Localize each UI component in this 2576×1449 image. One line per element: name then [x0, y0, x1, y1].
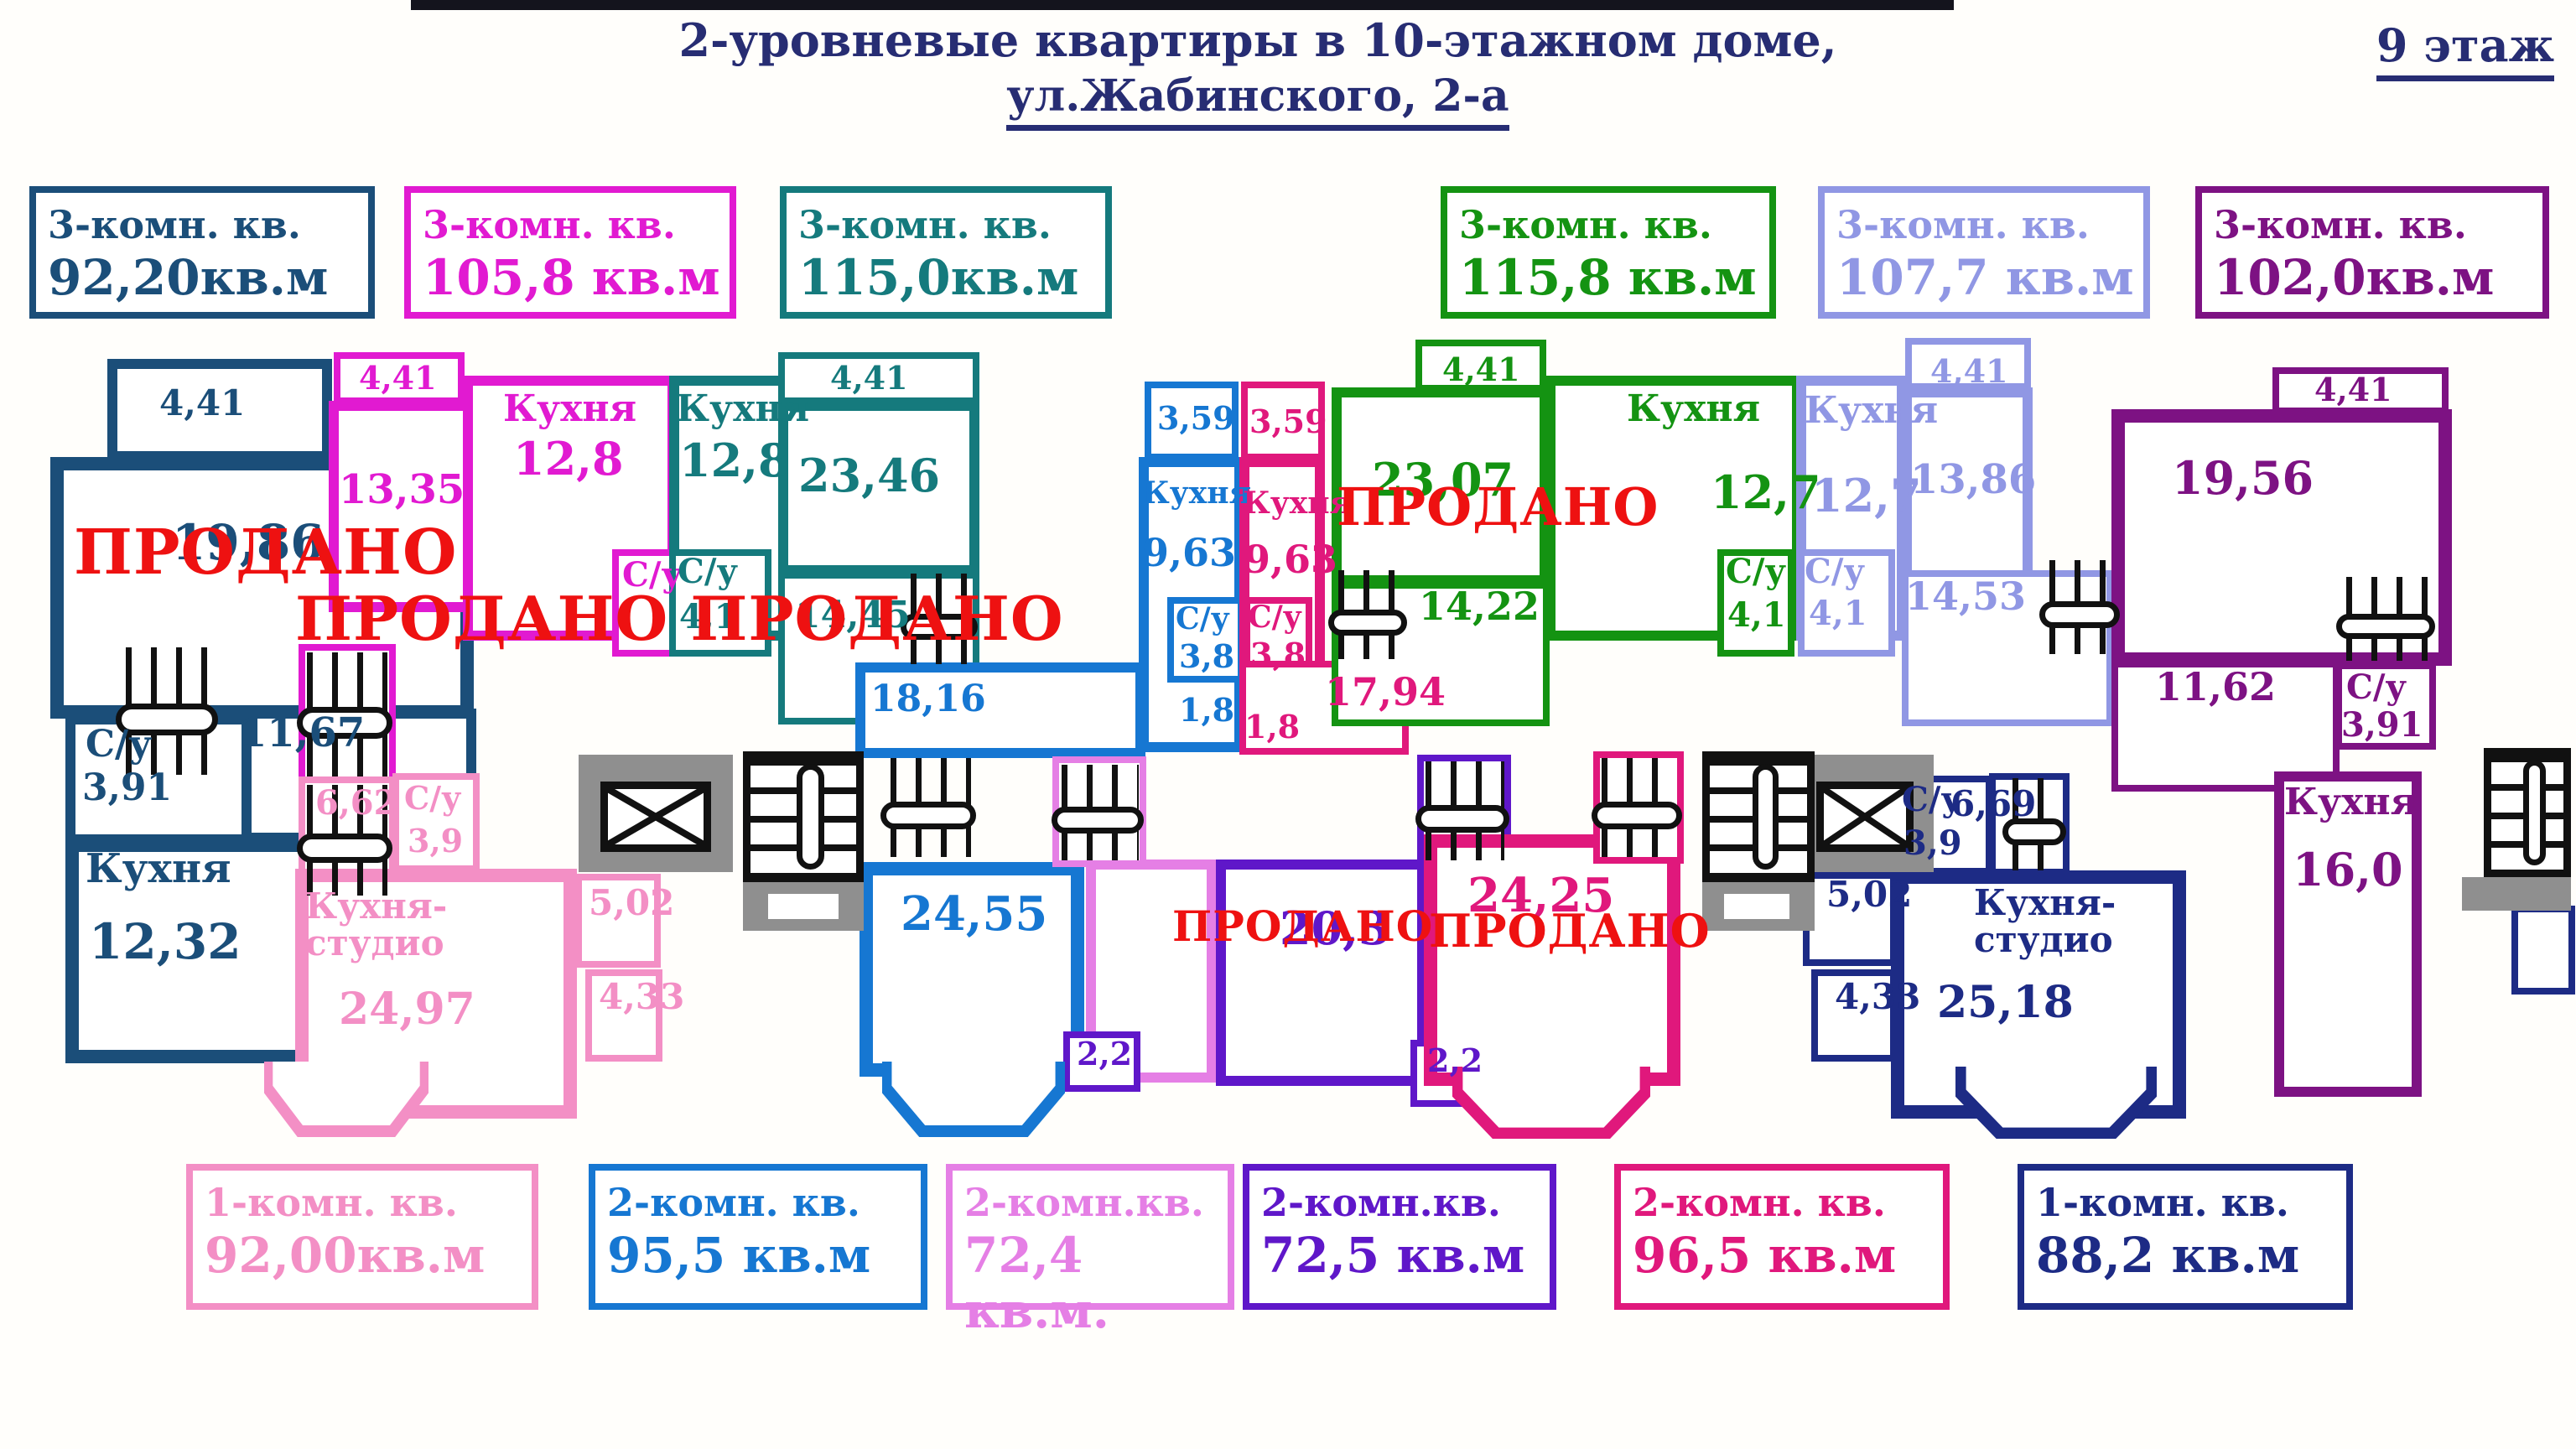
room-label: С/у: [1726, 555, 1786, 589]
sold-stamp: ПРОДАНО ПРОДАНО: [295, 589, 1064, 649]
room-label: Кухня: [1243, 488, 1352, 518]
room-label: Кухня: [2284, 784, 2418, 821]
room-label: 3,59: [1249, 406, 1327, 438]
stairwell-icon-left: [743, 751, 864, 882]
stairs-icon-green: [1338, 570, 1402, 659]
room-label: С/у: [404, 782, 461, 814]
room-label: 23,46: [798, 453, 940, 498]
room-label: Кухня-: [1974, 885, 2116, 921]
bay-window-pink: [264, 1062, 428, 1137]
room-label: С/у: [86, 726, 152, 763]
room-label: С/у: [1248, 602, 1302, 632]
room-label: 14,53: [1905, 577, 2026, 615]
room-label: 3,59: [1157, 402, 1235, 434]
room-label: 2,2: [1427, 1045, 1483, 1077]
room-label: 4,1: [1809, 597, 1867, 631]
room-label: Кухня: [1805, 392, 1938, 429]
room-label: 4,41: [1442, 354, 1520, 386]
stairwell-icon-right: [1702, 751, 1815, 882]
landing-window-right: [1724, 894, 1789, 919]
room-label: Кухня: [503, 391, 636, 428]
room-label: 3,8: [1250, 639, 1306, 671]
room-label: студио: [1974, 922, 2113, 958]
room-label: 16,0: [2293, 847, 2403, 892]
floorplan-page: { "header": { "title_line1": "2-уровневы…: [0, 0, 2576, 1449]
room-label: 4,41: [359, 362, 437, 394]
room-label: 12,7: [1711, 470, 1821, 515]
room-label: 12,32: [89, 917, 241, 966]
room-label: 1,8: [1244, 711, 1300, 743]
room-label: 13,86: [1910, 460, 2036, 500]
room-label: 5,02: [589, 885, 674, 921]
stairs-icon-crimson: [1602, 758, 1677, 857]
room-label: 12,8: [513, 436, 624, 481]
sold-stamp: ПРОДАНО: [1429, 908, 1711, 953]
room-label: Кухня: [676, 391, 809, 428]
stairs-icon-violet: [1426, 761, 1504, 860]
room-label: Кухня: [86, 849, 231, 889]
room-label: 3,91: [2341, 709, 2423, 742]
landing-window-left: [768, 894, 839, 919]
room-label: 4,33: [1835, 979, 1920, 1015]
room-label: 9,63: [1142, 533, 1236, 572]
room-label: 5,02: [1826, 877, 1912, 912]
bay-window-navy2: [1955, 1067, 2157, 1139]
room-label: 12,7: [1811, 473, 1922, 518]
room-label: Кухня: [1142, 478, 1251, 508]
sold-stamp: ПРОДАНО: [1172, 906, 1433, 948]
room-label: 25,18: [1937, 981, 2074, 1025]
room-label: С/у: [1176, 604, 1230, 634]
stairs-icon-blue: [891, 758, 971, 857]
floor-plan: 4,4119,8611,67С/у3,91Кухня12,324,4113,35…: [0, 0, 2576, 1449]
room-label: 4,33: [599, 979, 684, 1015]
room-label: 17,94: [1325, 673, 1446, 711]
elevator-icon-left: [600, 782, 711, 852]
room-label: 6,62: [315, 787, 397, 820]
room-label: 19,56: [2172, 455, 2314, 501]
stairwell-landing-far-right: [2462, 877, 2571, 911]
room-label: Кухня-: [305, 889, 447, 924]
room-label: 2,2: [1077, 1038, 1132, 1070]
room-label: 3,8: [1179, 641, 1234, 673]
room-label: 13,35: [339, 470, 465, 510]
sold-stamp: ПРОДАНО: [74, 522, 457, 584]
room-label: 4,41: [830, 362, 908, 394]
room-label: 14,22: [1419, 587, 1540, 626]
room-label: 3,91: [82, 770, 172, 807]
room-label: Кухня: [1627, 391, 1760, 428]
room-label: 4,41: [1930, 356, 2008, 387]
room-label: С/у: [1805, 555, 1865, 589]
room-label: 3,9: [408, 825, 463, 857]
room-label: 4,1: [1727, 599, 1786, 632]
room-label: 11,67: [239, 713, 365, 753]
stairwell-icon-far-right: [2484, 748, 2571, 877]
bay-window-blue: [882, 1062, 1065, 1137]
stairs-icon-purple: [2346, 577, 2430, 661]
sold-stamp: ПРОДАНО: [1337, 481, 1659, 533]
elevator-icon-right: [1816, 782, 1914, 852]
wall-navy2-entry: [2511, 906, 2575, 995]
stairs-icon-lavender: [2049, 560, 2115, 654]
room-label: 18,16: [870, 681, 986, 718]
room-label: С/у: [2346, 671, 2407, 704]
room-label: 11,62: [2155, 667, 2276, 706]
room-label: 24,97: [339, 988, 475, 1031]
room-label: 1,8: [1179, 694, 1234, 726]
wall-violet-room: [1216, 860, 1427, 1086]
room-label: 12,8: [679, 438, 790, 483]
room-label: 9,63: [1244, 540, 1337, 579]
stairs-icon-orchid: [1062, 765, 1139, 860]
room-label: 24,55: [901, 891, 1047, 937]
room-label: 4,41: [159, 386, 245, 421]
room-label: 6,69: [1950, 787, 2036, 822]
room-label: 4,41: [2314, 374, 2392, 406]
room-label: 3,9: [1903, 827, 1962, 860]
room-label: студио: [305, 926, 444, 961]
